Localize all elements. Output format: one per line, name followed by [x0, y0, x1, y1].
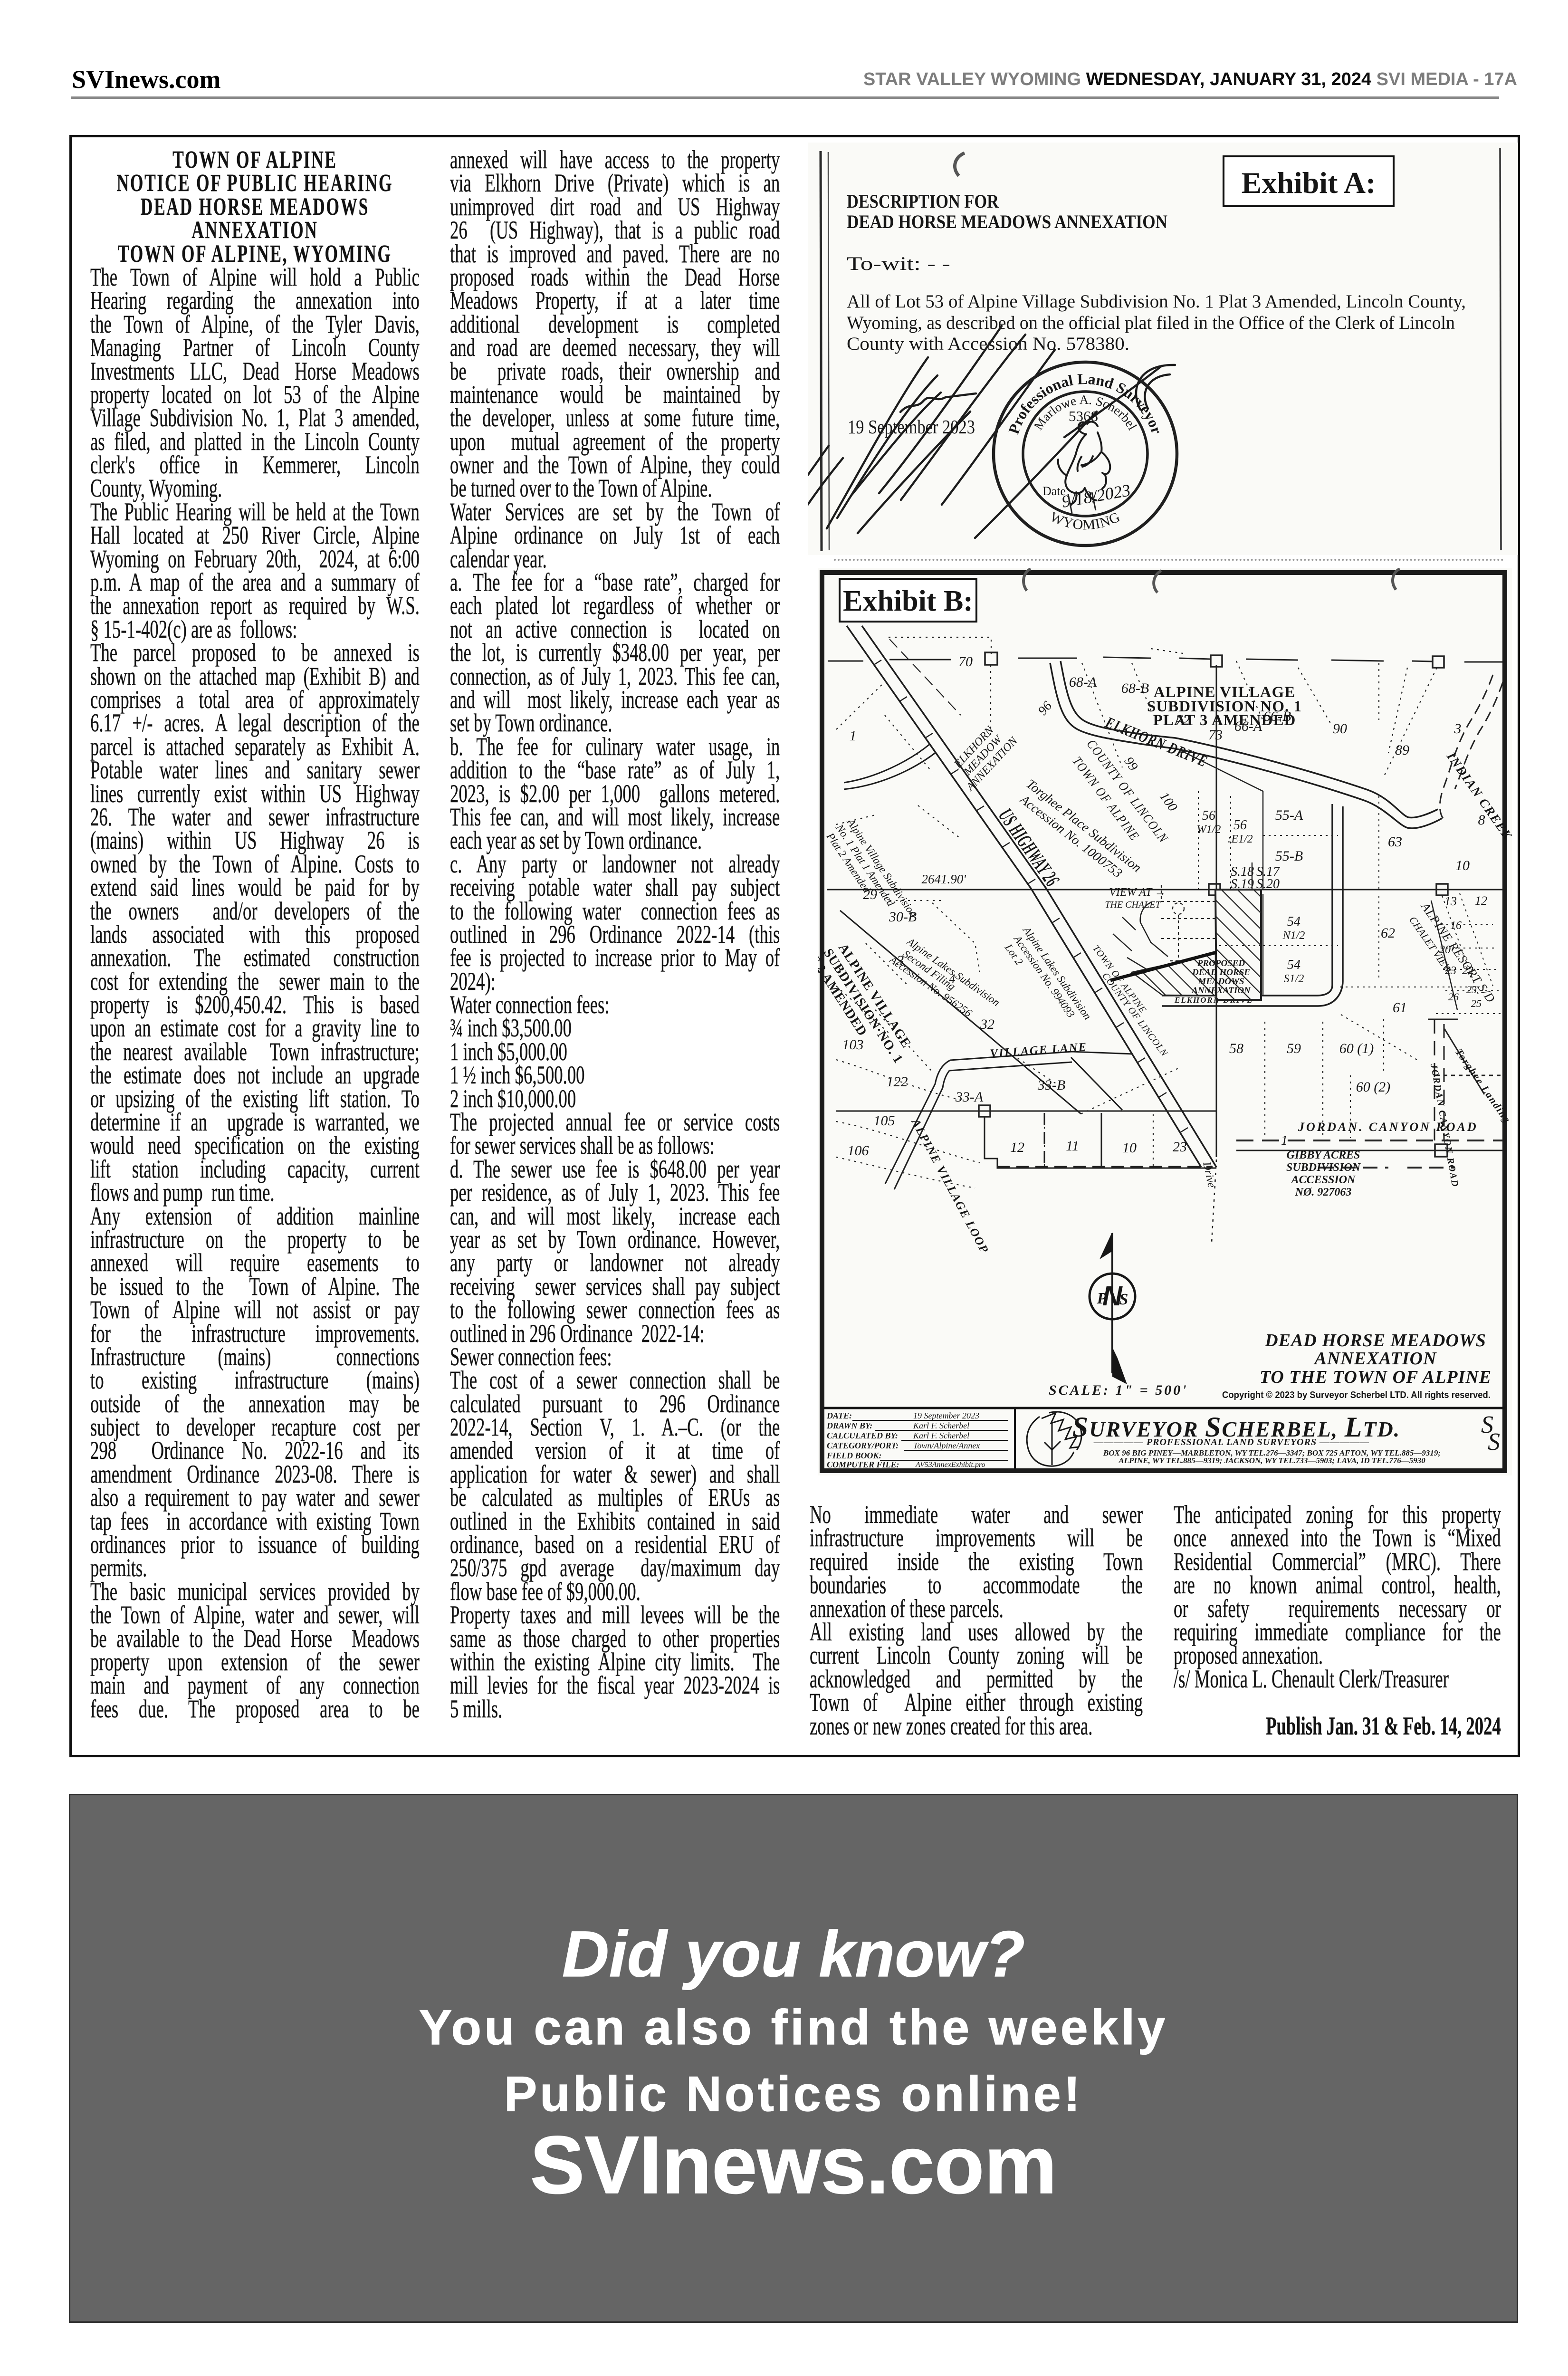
svg-text:60 (2): 60 (2): [1356, 1079, 1390, 1095]
svg-text:23: 23: [1445, 965, 1456, 977]
svg-text:COMPUTER FILE:: COMPUTER FILE:: [827, 1460, 899, 1469]
svg-text:11: 11: [1066, 1138, 1079, 1154]
svg-text:103: 103: [842, 1037, 864, 1053]
svg-text:NØ. 927063: NØ. 927063: [1295, 1186, 1352, 1198]
svg-text:73: 73: [1208, 727, 1223, 743]
svg-text:33-A: 33-A: [955, 1089, 984, 1105]
svg-text:SCALE: 1" = 500': SCALE: 1" = 500': [1049, 1382, 1188, 1398]
svg-text:68-B: 68-B: [1121, 680, 1149, 696]
svg-text:19 September 2023: 19 September 2023: [848, 416, 975, 438]
svg-text:JORDAN. CANYON ROAD: JORDAN. CANYON ROAD: [1298, 1120, 1478, 1134]
svg-text:122: 122: [887, 1074, 908, 1090]
svg-text:63: 63: [1388, 834, 1402, 850]
svg-text::E1/2: :E1/2: [1227, 833, 1252, 845]
svg-text:CALCULATED BY:: CALCULATED BY:: [827, 1431, 898, 1440]
svg-text:59: 59: [1287, 1041, 1301, 1056]
svg-text:70: 70: [958, 654, 973, 670]
svg-text:55-B: 55-B: [1275, 848, 1303, 864]
svg-text:58: 58: [1229, 1041, 1243, 1056]
svg-text:DEAD HORSE: DEAD HORSE: [1192, 968, 1250, 977]
svg-text:89: 89: [1395, 742, 1409, 758]
svg-text:1: 1: [1281, 1133, 1288, 1148]
svg-text:68-A: 68-A: [1069, 674, 1097, 690]
svg-text:Exhibit A:: Exhibit A:: [1242, 166, 1376, 200]
svg-text:AV53AnnexExhibit.pro: AV53AnnexExhibit.pro: [915, 1461, 985, 1469]
svg-text:S: S: [1488, 1428, 1500, 1456]
svg-text:Exhibit B:: Exhibit B:: [843, 585, 973, 617]
svg-text:22: 22: [1462, 965, 1473, 977]
svg-text:DESCRIPTION FOR: DESCRIPTION FOR: [847, 191, 999, 212]
svg-text:DEAD HORSE MEADOWS ANNEXATION: DEAD HORSE MEADOWS ANNEXATION: [847, 211, 1167, 232]
svg-text:SUBDIVISION: SUBDIVISION: [1286, 1161, 1361, 1174]
svg-text:4: 4: [949, 972, 956, 986]
svg-text:56: 56: [1233, 818, 1247, 833]
svg-text:ACCESSION: ACCESSION: [1291, 1174, 1356, 1186]
svg-text:————— PROFESSIONAL LAND SURVE: ————— PROFESSIONAL LAND SURVEYORS —————: [1093, 1437, 1369, 1447]
svg-text:P: P: [1097, 1290, 1107, 1307]
svg-text:FIELD BOOK:: FIELD BOOK:: [826, 1451, 882, 1460]
svg-text:60 (1): 60 (1): [1339, 1041, 1374, 1056]
svg-text:10: 10: [1455, 858, 1470, 873]
svg-text:54: 54: [1287, 914, 1300, 929]
svg-text:Copyright © 2023 by Surveyor S: Copyright © 2023 by Surveyor Scherbel LT…: [1222, 1390, 1491, 1400]
svg-text:25: 25: [1466, 984, 1477, 996]
svg-text:16: 16: [1450, 920, 1462, 932]
svg-text:N1/2: N1/2: [1282, 929, 1305, 942]
svg-text:32: 32: [980, 1016, 994, 1032]
svg-text:3: 3: [897, 953, 904, 968]
svg-text:ANNEXATION: ANNEXATION: [1313, 1349, 1437, 1369]
svg-text:All of Lot 53 of Alpine Villag: All of Lot 53 of Alpine Village Subdivis…: [847, 291, 1466, 312]
svg-text:56: 56: [1202, 808, 1215, 823]
svg-text:12: 12: [1010, 1140, 1024, 1155]
svg-text:8: 8: [1478, 812, 1485, 828]
svg-text:66-A: 66-A: [1234, 719, 1262, 734]
svg-text:THE CHALET: THE CHALET: [1105, 900, 1161, 910]
svg-text:DATE:: DATE:: [826, 1411, 852, 1420]
svg-text:54: 54: [1287, 958, 1300, 972]
svg-text:W1/2: W1/2: [1197, 824, 1221, 836]
svg-text:VIEW AT →: VIEW AT →: [1109, 886, 1166, 899]
svg-text:MEADOWS: MEADOWS: [1197, 977, 1244, 987]
svg-text:61: 61: [1393, 1000, 1407, 1016]
svg-text:Town/Alpine/Annex: Town/Alpine/Annex: [913, 1441, 980, 1450]
svg-text:S: S: [1119, 1291, 1128, 1308]
svg-text:CATEGORY/PORT:: CATEGORY/PORT:: [827, 1441, 899, 1450]
svg-text:2641.90': 2641.90': [921, 872, 966, 886]
svg-text:ALPINE, WY TEL.885—9319; JACK: ALPINE, WY TEL.885—9319; JACKSON, WY TEL…: [1118, 1456, 1425, 1465]
svg-text:29: 29: [863, 887, 877, 902]
svg-text:72: 72: [1176, 712, 1190, 728]
svg-text:19 September 2023: 19 September 2023: [913, 1411, 979, 1420]
svg-text:Karl F. Scherbel: Karl F. Scherbel: [913, 1421, 969, 1430]
svg-text:3: 3: [1454, 721, 1462, 737]
svg-text:106: 106: [848, 1143, 869, 1159]
svg-text:GIBBY ACRES: GIBBY ACRES: [1287, 1149, 1360, 1161]
svg-text:30-B: 30-B: [889, 909, 917, 925]
svg-text:105: 105: [874, 1113, 895, 1129]
svg-text:Karl F. Scherbel: Karl F. Scherbel: [913, 1431, 969, 1440]
svg-text:DEAD HORSE MEADOWS: DEAD HORSE MEADOWS: [1264, 1331, 1486, 1351]
svg-text:10: 10: [1122, 1140, 1137, 1156]
svg-text:25: 25: [1471, 997, 1482, 1009]
svg-text:TO THE TOWN OF ALPINE: TO THE TOWN OF ALPINE: [1260, 1367, 1492, 1387]
svg-text:To-wit: - -: To-wit: - -: [847, 253, 950, 274]
svg-text:62: 62: [1381, 925, 1395, 941]
svg-text:1: 1: [850, 728, 857, 744]
svg-text:13: 13: [1444, 894, 1457, 908]
svg-text:PROPOSED: PROPOSED: [1197, 958, 1245, 968]
svg-text:ANNEXATION: ANNEXATION: [1191, 986, 1251, 996]
svg-text:Wyoming, as described on the o: Wyoming, as described on the official pl…: [847, 313, 1455, 333]
svg-text:26: 26: [1448, 991, 1459, 1003]
svg-text:90: 90: [1333, 721, 1347, 737]
svg-text:DRAWN BY:: DRAWN BY:: [826, 1421, 872, 1430]
svg-text:33-B: 33-B: [1037, 1077, 1065, 1093]
svg-text:55-A: 55-A: [1275, 807, 1303, 823]
svg-text:20: 20: [1439, 944, 1451, 956]
svg-text:23: 23: [1173, 1139, 1187, 1155]
svg-text:12: 12: [1475, 894, 1487, 908]
svg-text:66-B: 66-B: [1263, 709, 1291, 724]
svg-text:S1/2: S1/2: [1284, 973, 1304, 985]
